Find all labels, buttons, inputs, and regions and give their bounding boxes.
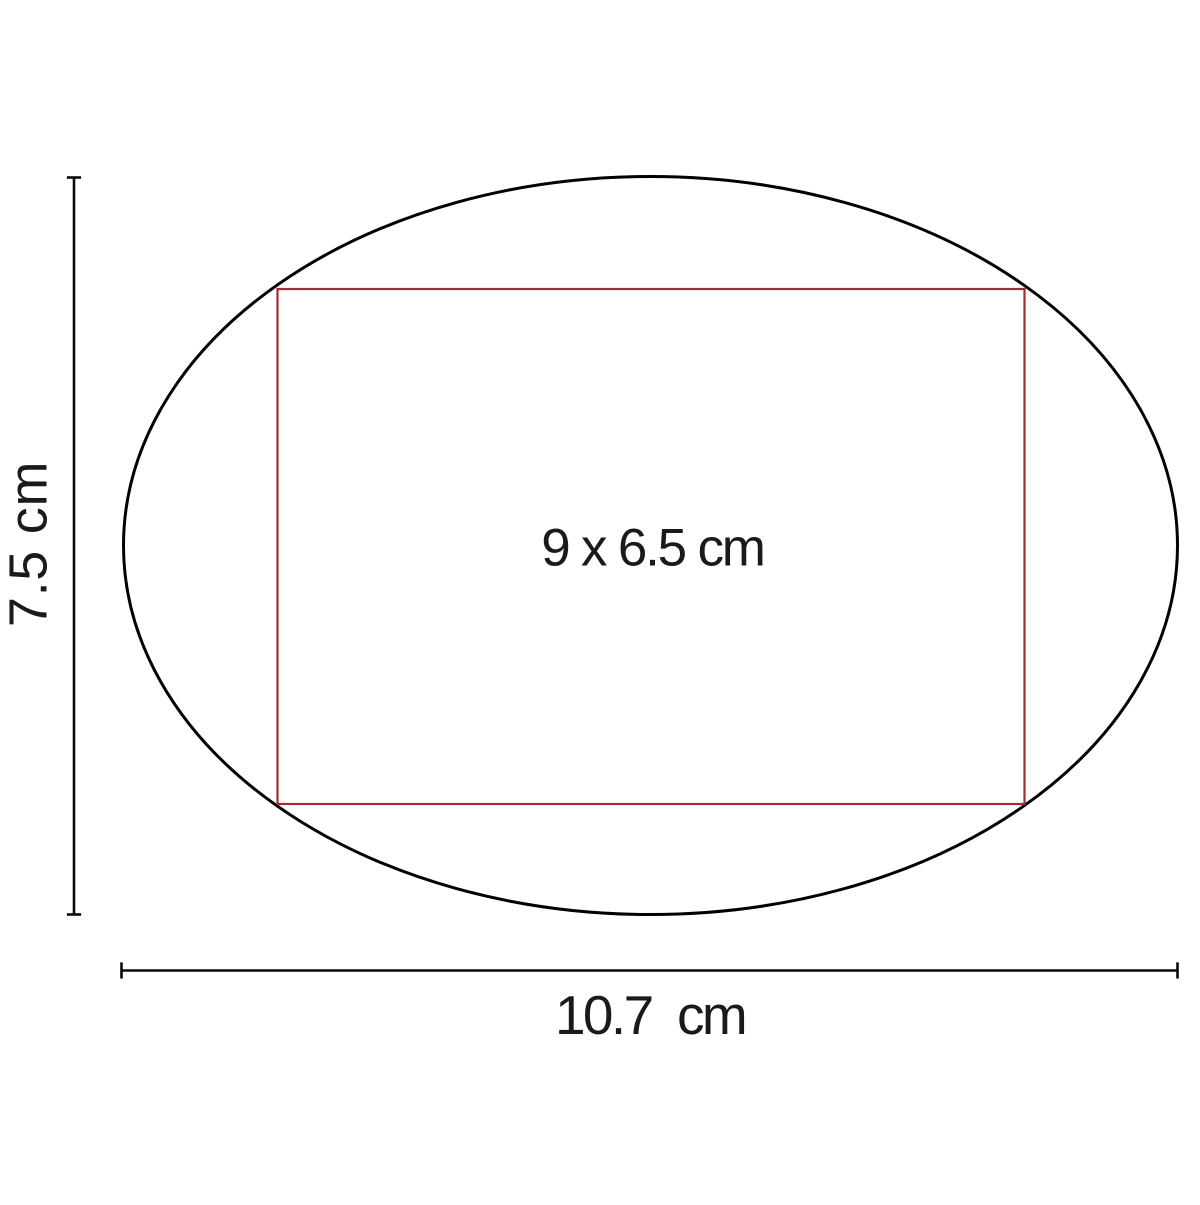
svg-text:9 x 6.5 cm: 9 x 6.5 cm bbox=[541, 519, 763, 578]
svg-text:7.5 cm: 7.5 cm bbox=[0, 461, 59, 627]
svg-text:10.7 cm: 10.7 cm bbox=[555, 984, 745, 1046]
